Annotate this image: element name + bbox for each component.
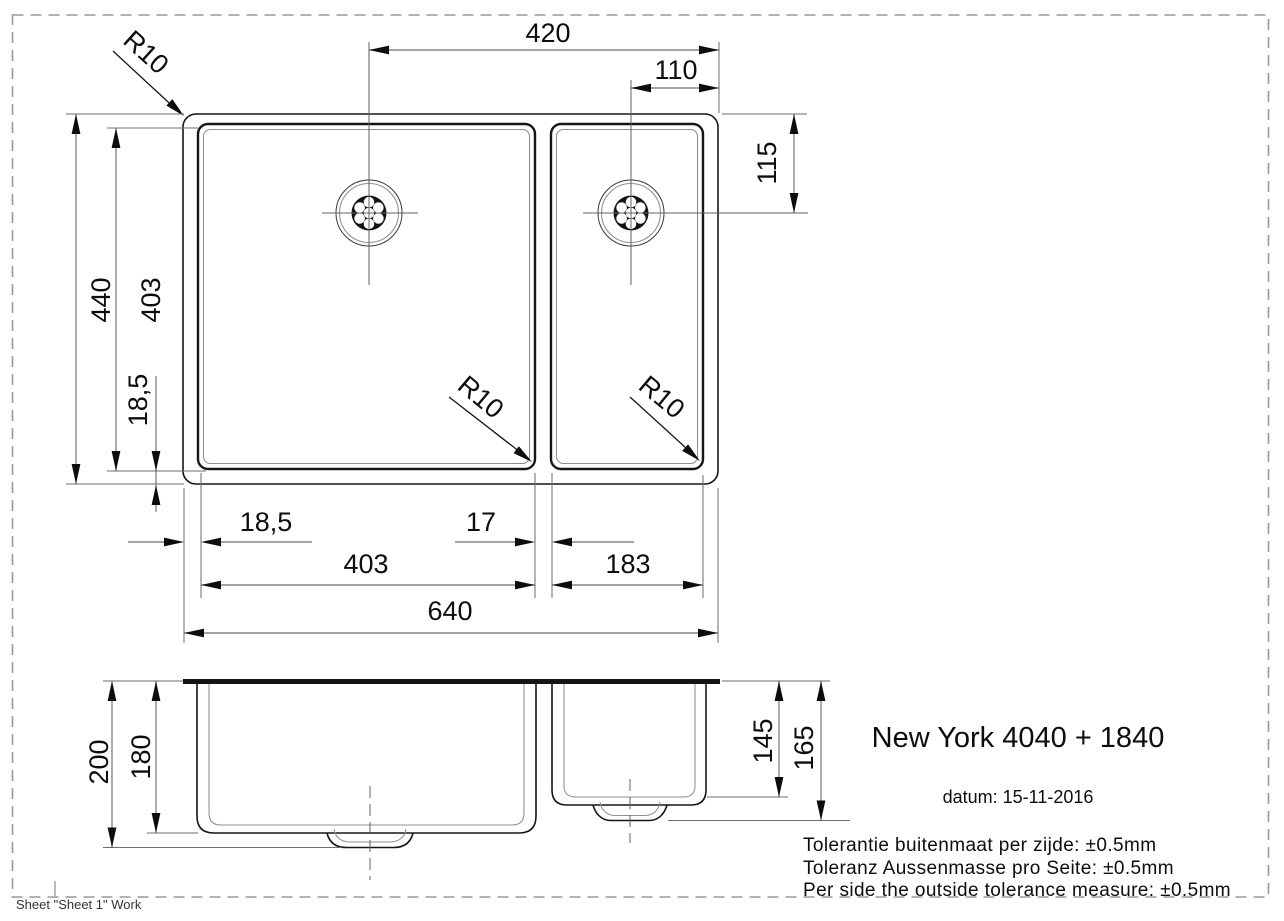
page-border [13, 15, 1269, 897]
arrowhead [699, 46, 719, 55]
arrowhead [775, 681, 784, 701]
dim-17: 17 [455, 507, 634, 546]
dim-440: 440 [72, 114, 116, 484]
dim-115: 115 [752, 114, 798, 213]
date-label: datum: 15-11-2016 [943, 787, 1094, 807]
dim-18-5-vertical: 18,5 [123, 374, 160, 512]
arrowhead [152, 681, 161, 701]
dim-text: 640 [427, 596, 472, 626]
side-view [183, 679, 720, 880]
model-title: New York 4040 + 1840 [872, 722, 1165, 754]
arrowhead [369, 46, 389, 55]
arrowhead [112, 451, 121, 471]
radius-label: R10 [118, 25, 175, 80]
radius-callout-right-bowl: R10 [630, 370, 703, 465]
radius-label: R10 [633, 370, 690, 425]
dim-145: 145 [748, 681, 783, 797]
dim-text: 165 [789, 725, 819, 770]
dim-text: 18,5 [240, 507, 293, 537]
technical-drawing: R10 R10 R10 [0, 0, 1284, 916]
dim-200: 200 [84, 681, 116, 848]
right-bowl-profile [552, 684, 706, 805]
arrowhead [699, 84, 719, 93]
arrowhead [108, 681, 117, 701]
arrowhead [152, 451, 161, 471]
left-bowl-inner-profile [209, 684, 524, 825]
side-view-dimensions: 200 180 145 165 [84, 681, 850, 848]
left-bowl-profile [197, 684, 536, 833]
arrowhead [152, 813, 161, 833]
dim-180: 180 [126, 681, 160, 833]
arrowhead [683, 581, 703, 590]
dim-text: 420 [525, 18, 570, 48]
dim-text: 17 [466, 507, 496, 537]
radius-label: R10 [452, 370, 509, 425]
dim-text: 403 [136, 277, 166, 322]
arrowhead [552, 581, 572, 590]
radius-callout-left-bowl: R10 [449, 370, 535, 466]
dim-165: 165 [789, 681, 825, 821]
dim-text: 183 [605, 549, 650, 579]
arrowhead [790, 114, 799, 134]
arrowhead [775, 777, 784, 797]
leader-arrowhead [514, 446, 535, 465]
dim-text: 145 [748, 718, 778, 763]
dim-text: 18,5 [123, 374, 153, 427]
arrowhead [108, 828, 117, 848]
arrowhead [552, 538, 572, 547]
sink-outer-rect [183, 114, 718, 484]
arrowhead [201, 581, 221, 590]
arrowhead [515, 538, 535, 547]
top-view: R10 R10 R10 [113, 25, 808, 484]
dim-text: 115 [752, 141, 782, 184]
arrowhead [631, 84, 651, 93]
dim-text: 180 [126, 734, 156, 779]
arrowhead [72, 464, 81, 484]
arrowhead [201, 538, 221, 547]
dim-420: 420 [369, 18, 719, 54]
tolerance-note-nl: Tolerantie buitenmaat per zijde: ±0.5mm [803, 835, 1156, 856]
radius-callout-top-left: R10 [113, 25, 187, 120]
dim-text: 110 [654, 55, 697, 85]
dim-110: 110 [631, 55, 719, 92]
dim-text: 200 [84, 739, 114, 784]
dim-text: 403 [343, 549, 388, 579]
tolerance-note-en: Per side the outside tolerance measure: … [803, 880, 1231, 901]
dim-640: 640 [184, 596, 718, 637]
right-bowl-rect [551, 124, 703, 469]
arrowhead [164, 538, 184, 547]
arrowhead [790, 193, 799, 213]
left-drain [322, 42, 418, 285]
dim-403-bottom: 403 [201, 549, 535, 589]
dim-183: 183 [552, 549, 703, 589]
dim-text: 440 [86, 277, 116, 322]
dim-18-5-bottom: 18,5 [128, 507, 312, 546]
sheet-label: Sheet "Sheet 1" Work [16, 897, 142, 912]
arrowhead [817, 681, 826, 701]
extension-lines [103, 681, 850, 848]
arrowhead [698, 629, 718, 638]
tolerance-note-de: Toleranz Aussenmasse pro Seite: ±0.5mm [803, 858, 1174, 879]
flange-profile [183, 679, 720, 684]
arrowhead [112, 128, 121, 148]
arrowhead [152, 485, 161, 505]
title-block: New York 4040 + 1840 datum: 15-11-2016 T… [803, 722, 1231, 901]
arrowhead [515, 581, 535, 590]
leader-arrowhead [166, 99, 187, 119]
arrowhead [817, 801, 826, 821]
arrowhead [72, 114, 81, 134]
arrowhead [184, 629, 204, 638]
